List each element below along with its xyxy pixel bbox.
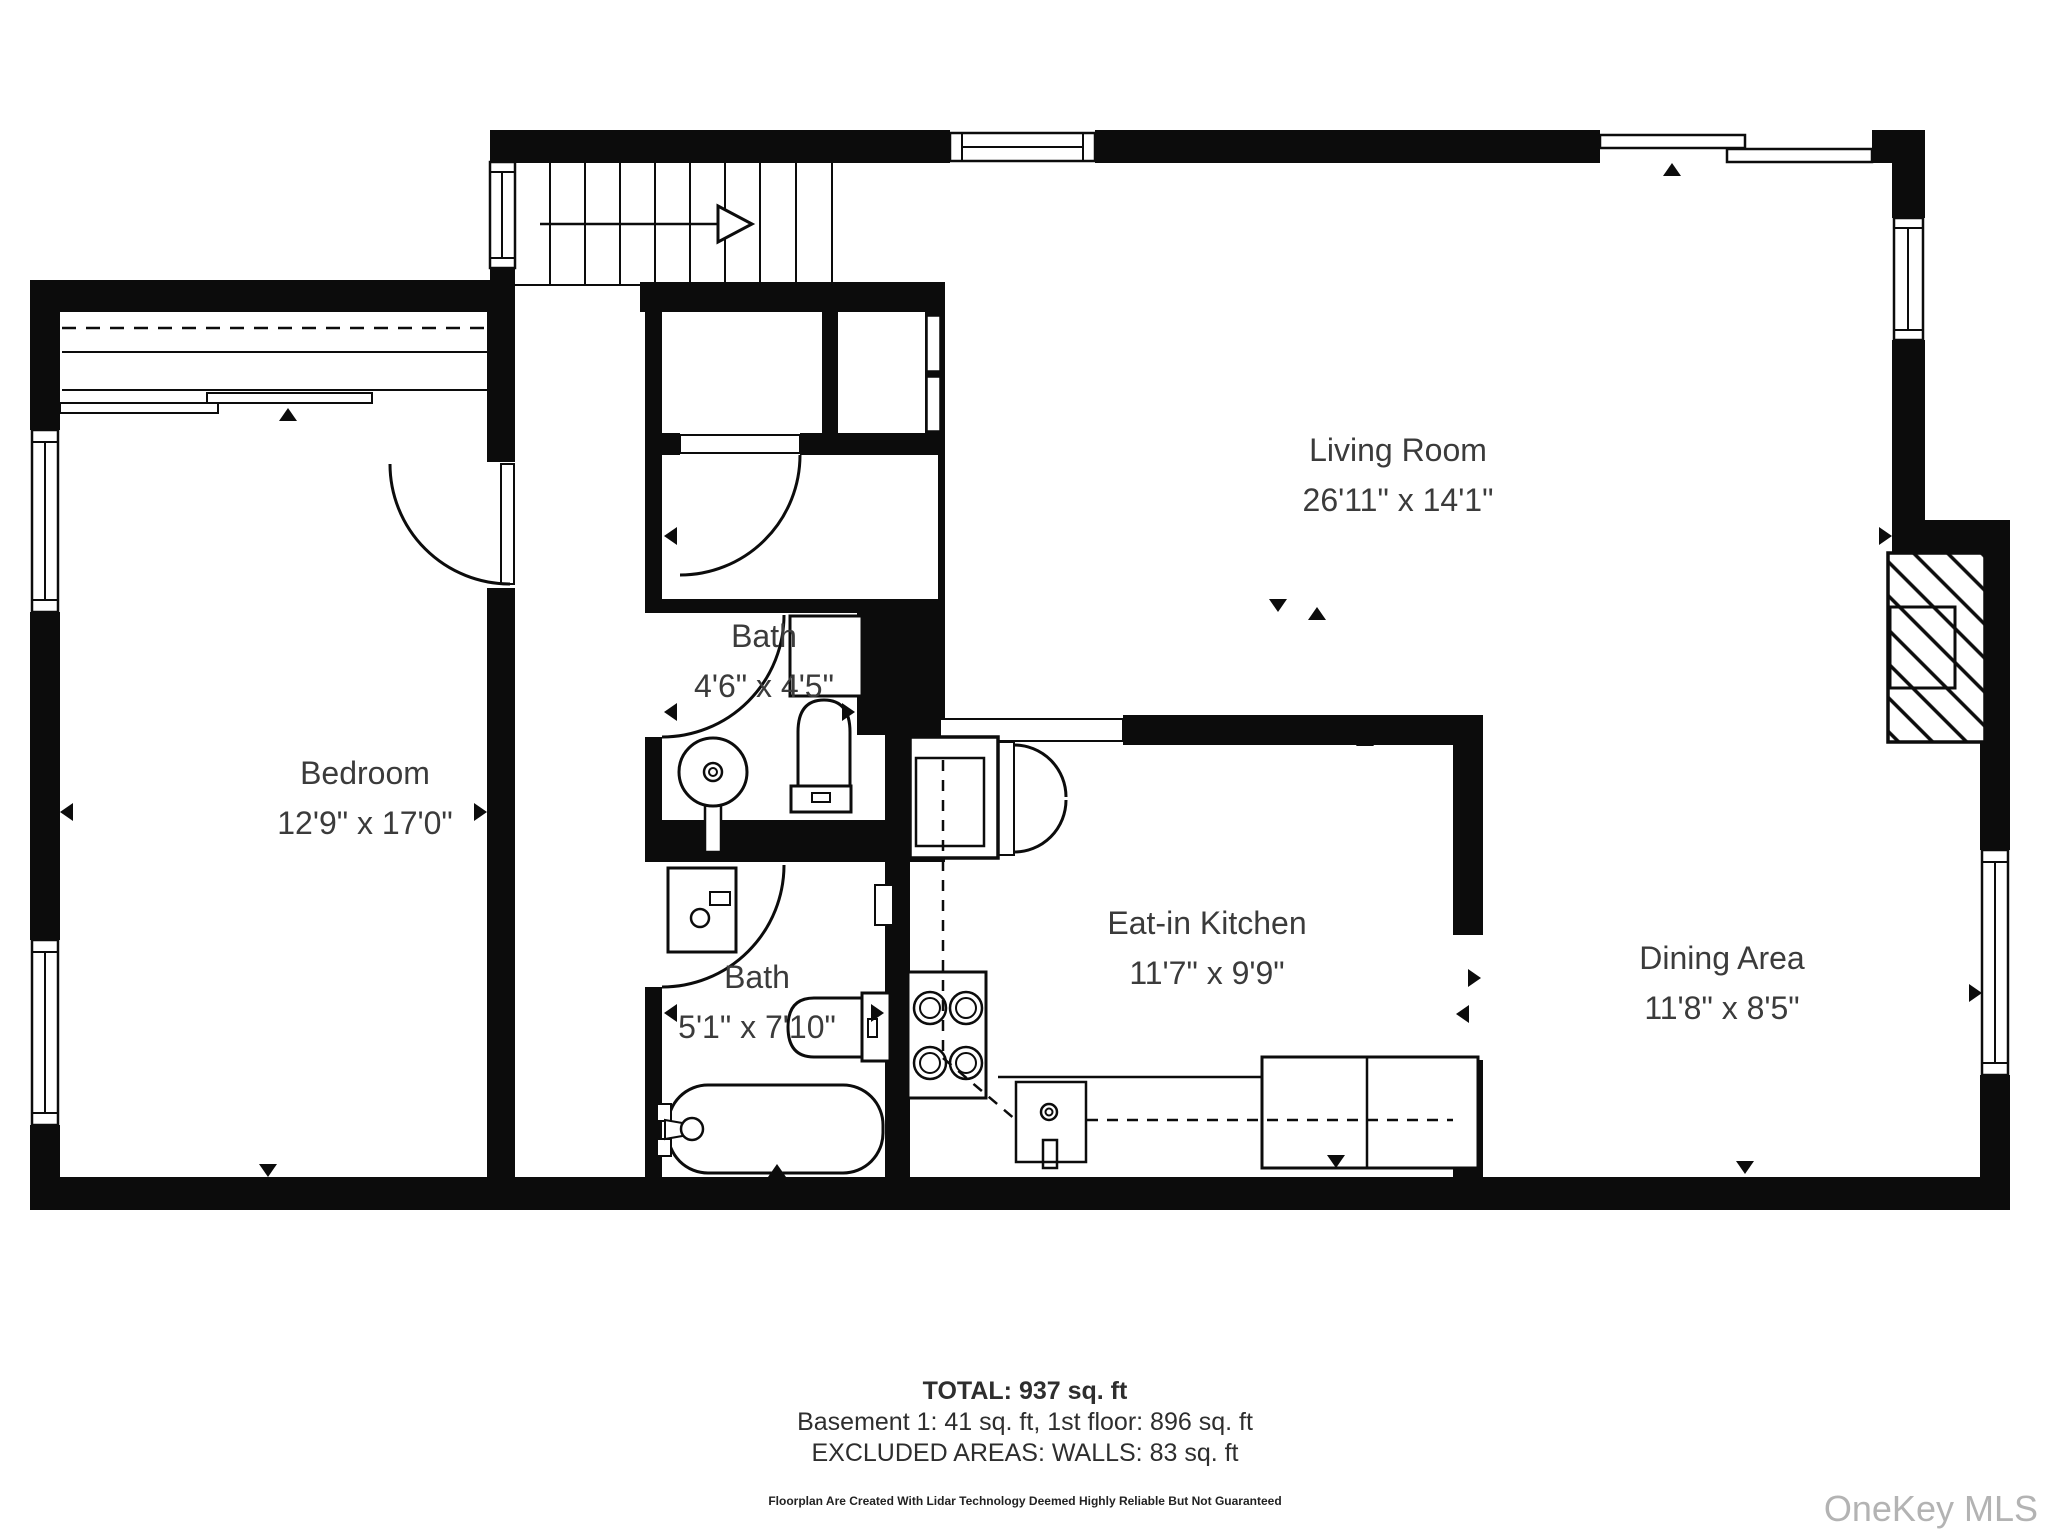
room-label-bath-lower: Bath 5'1" x 7'10" — [678, 952, 836, 1052]
marker-left-icon — [664, 703, 677, 721]
room-name: Dining Area — [1639, 933, 1804, 983]
room-name: Bedroom — [277, 748, 453, 798]
room-name: Bath — [678, 952, 836, 1002]
room-dims: 4'6" x 4'5" — [694, 661, 834, 711]
marker-right-icon — [1468, 969, 1481, 987]
closet-sliding-door-panel — [207, 393, 372, 403]
room-name: Bath — [694, 611, 834, 661]
marker-down-icon — [1736, 1161, 1754, 1174]
stove-icon — [908, 972, 986, 1098]
marker-left-icon — [664, 1004, 677, 1022]
chimney-hatch — [1888, 553, 1985, 742]
floor-breakdown-text: Basement 1: 41 sq. ft, 1st floor: 896 sq… — [768, 1407, 1281, 1438]
room-dims: 11'7" x 9'9" — [1107, 948, 1306, 998]
room-label-kitchen: Eat-in Kitchen 11'7" x 9'9" — [1107, 898, 1306, 998]
area-summary: TOTAL: 937 sq. ft Basement 1: 41 sq. ft,… — [768, 1376, 1281, 1508]
window-bedroom-lower — [32, 940, 58, 1125]
door-hall-closet — [680, 435, 800, 575]
marker-right-icon — [1969, 984, 1982, 1002]
room-name: Living Room — [1303, 425, 1494, 475]
room-dims: 5'1" x 7'10" — [678, 1002, 836, 1052]
wall-shelf — [875, 885, 893, 925]
marker-left-icon — [1456, 1005, 1469, 1023]
window-top-living — [950, 133, 1095, 161]
excluded-areas-text: EXCLUDED AREAS: WALLS: 83 sq. ft — [768, 1438, 1281, 1469]
marker-up-icon — [1308, 607, 1326, 620]
total-area-text: TOTAL: 937 sq. ft — [768, 1376, 1281, 1407]
floorplan-page: Living Room 26'11" x 14'1" Bedroom 12'9"… — [0, 0, 2048, 1536]
room-dims: 26'11" x 14'1" — [1303, 475, 1494, 525]
marker-down-icon — [259, 1164, 277, 1177]
marker-right-icon — [1879, 527, 1892, 545]
marker-left-icon — [60, 803, 73, 821]
staircase — [515, 163, 832, 285]
vanity-sink-icon — [668, 868, 736, 952]
window-top-sliding — [1600, 135, 1872, 162]
room-label-bath-upper: Bath 4'6" x 4'5" — [694, 611, 834, 711]
room-label-living-room: Living Room 26'11" x 14'1" — [1303, 425, 1494, 525]
kitchen-sink-icon — [1016, 1082, 1086, 1168]
stairs-direction-arrow-icon — [718, 206, 752, 242]
room-dims: 12'9" x 17'0" — [277, 798, 453, 848]
marker-left-icon — [664, 527, 677, 545]
window-stairwell — [490, 162, 515, 268]
walls — [30, 130, 2010, 1210]
room-label-bedroom: Bedroom 12'9" x 17'0" — [277, 748, 453, 848]
room-label-dining: Dining Area 11'8" x 8'5" — [1639, 933, 1804, 1033]
room-dims: 11'8" x 8'5" — [1639, 983, 1804, 1033]
window-bedroom-upper — [32, 430, 58, 612]
disclaimer-text: Floorplan Are Created With Lidar Technol… — [768, 1494, 1281, 1508]
bedroom-closet — [60, 328, 492, 413]
door-bedroom — [390, 464, 514, 584]
kitchen-cabinets — [1262, 1057, 1478, 1168]
refrigerator-icon — [910, 737, 998, 858]
marker-up-icon — [1663, 163, 1681, 176]
room-name: Eat-in Kitchen — [1107, 898, 1306, 948]
marker-down-icon — [1269, 599, 1287, 612]
bathtub-icon — [657, 1085, 883, 1173]
window-dining-right — [1982, 850, 2008, 1075]
window-living-right — [1894, 218, 1923, 340]
closet-sliding-door-panel — [60, 403, 218, 413]
marker-right-icon — [474, 803, 487, 821]
watermark: OneKey MLS — [1824, 1488, 2038, 1530]
marker-up-icon — [279, 408, 297, 421]
